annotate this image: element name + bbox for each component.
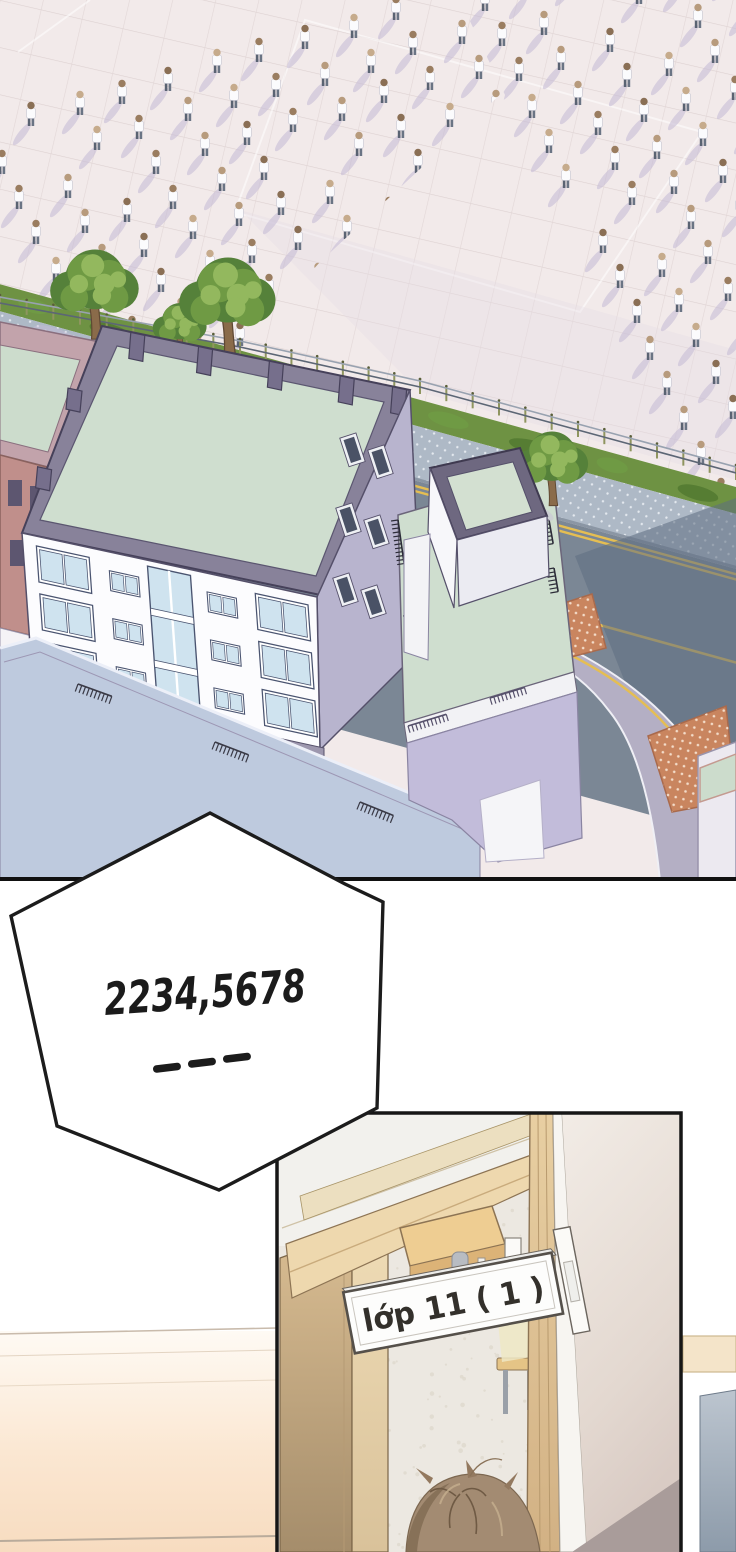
far-building-sliver <box>698 742 736 881</box>
chair-back <box>700 1390 736 1552</box>
hallway-wall-left <box>0 1328 277 1552</box>
speech-bubble: 2234,5678 <box>0 780 460 1220</box>
comic-page: lớp 11 ( 1 ) 2234,5678 <box>0 0 736 1552</box>
school-aerial-panel <box>0 0 736 881</box>
desk-edge <box>683 1336 736 1372</box>
